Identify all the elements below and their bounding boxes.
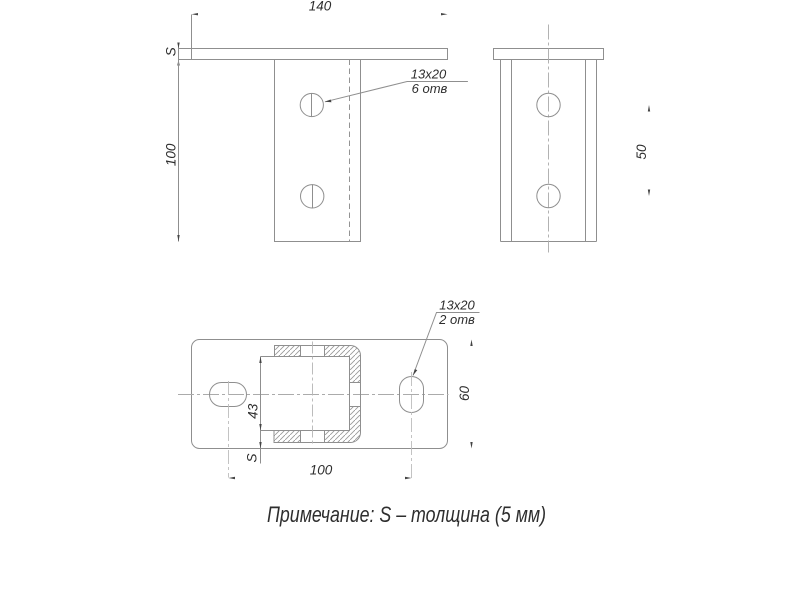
svg-text:Примечание: S – толщина (5 мм): Примечание: S – толщина (5 мм) xyxy=(267,502,546,527)
svg-text:60: 60 xyxy=(457,386,472,402)
svg-text:S: S xyxy=(164,47,179,56)
svg-text:100: 100 xyxy=(164,143,179,166)
svg-text:6 отв: 6 отв xyxy=(412,81,448,96)
svg-text:50: 50 xyxy=(634,144,649,160)
svg-text:13x20: 13x20 xyxy=(411,67,447,82)
svg-text:43: 43 xyxy=(245,403,260,419)
svg-text:140: 140 xyxy=(309,0,332,14)
svg-text:S: S xyxy=(244,453,259,462)
svg-text:13x20: 13x20 xyxy=(439,298,475,313)
svg-text:100: 100 xyxy=(310,463,333,478)
svg-text:2 отв: 2 отв xyxy=(438,312,475,327)
